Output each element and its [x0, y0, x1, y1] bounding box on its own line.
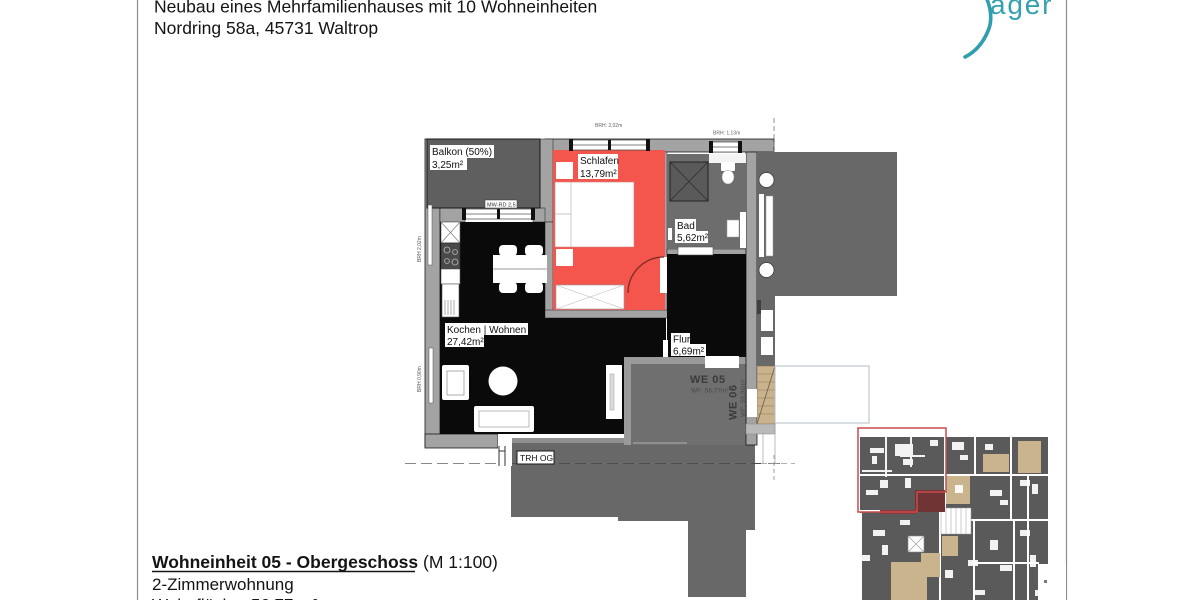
svg-text:WE 06: WE 06 [728, 384, 740, 420]
svg-text:Wohneinheit 05 - Obergeschoss: Wohneinheit 05 - Obergeschoss (M 1:100) [152, 552, 498, 572]
svg-text:5,62m²: 5,62m² [677, 233, 709, 244]
svg-text:BRH: 1,13m: BRH: 1,13m [713, 131, 740, 137]
svg-text:WE 05: WE 05 [690, 374, 726, 386]
svg-text:BRH 2,02m: BRH 2,02m [417, 236, 423, 262]
svg-text:BRH 0,90m: BRH 0,90m [417, 366, 423, 392]
svg-text:Kochen | Wohnen: Kochen | Wohnen [447, 325, 526, 336]
svg-text:6,69m²: 6,69m² [673, 347, 705, 358]
svg-text:WF: 56,77m²: WF: 56,77m² [691, 388, 729, 395]
svg-text:13,79m²: 13,79m² [580, 169, 617, 180]
svg-text:MW-RD 2,5: MW-RD 2,5 [487, 203, 516, 209]
svg-text:Balkon (50%): Balkon (50%) [432, 147, 492, 158]
svg-text:Wohnfläche: 56,77 m²: Wohnfläche: 56,77 m² [152, 596, 318, 600]
svg-text:Nordring 58a, 45731 Waltrop: Nordring 58a, 45731 Waltrop [154, 18, 378, 38]
svg-text:Schlafen: Schlafen [580, 156, 619, 167]
svg-text:BRH: 2,02m: BRH: 2,02m [595, 123, 622, 129]
svg-text:Neubau eines Mehrfamilienhause: Neubau eines Mehrfamilienhauses mit 10 W… [154, 0, 597, 17]
svg-text:3,25m²: 3,25m² [432, 160, 464, 171]
svg-text:Bad: Bad [677, 221, 695, 232]
svg-text:ager: ager [990, 0, 1053, 20]
svg-text:WF: 58,96m²: WF: 58,96m² [740, 379, 747, 417]
svg-text:2-Zimmerwohnung: 2-Zimmerwohnung [152, 575, 294, 594]
svg-text:TRH OG: TRH OG [520, 453, 553, 463]
svg-text:27,42m²: 27,42m² [447, 337, 484, 348]
svg-text:Flur: Flur [673, 335, 691, 346]
